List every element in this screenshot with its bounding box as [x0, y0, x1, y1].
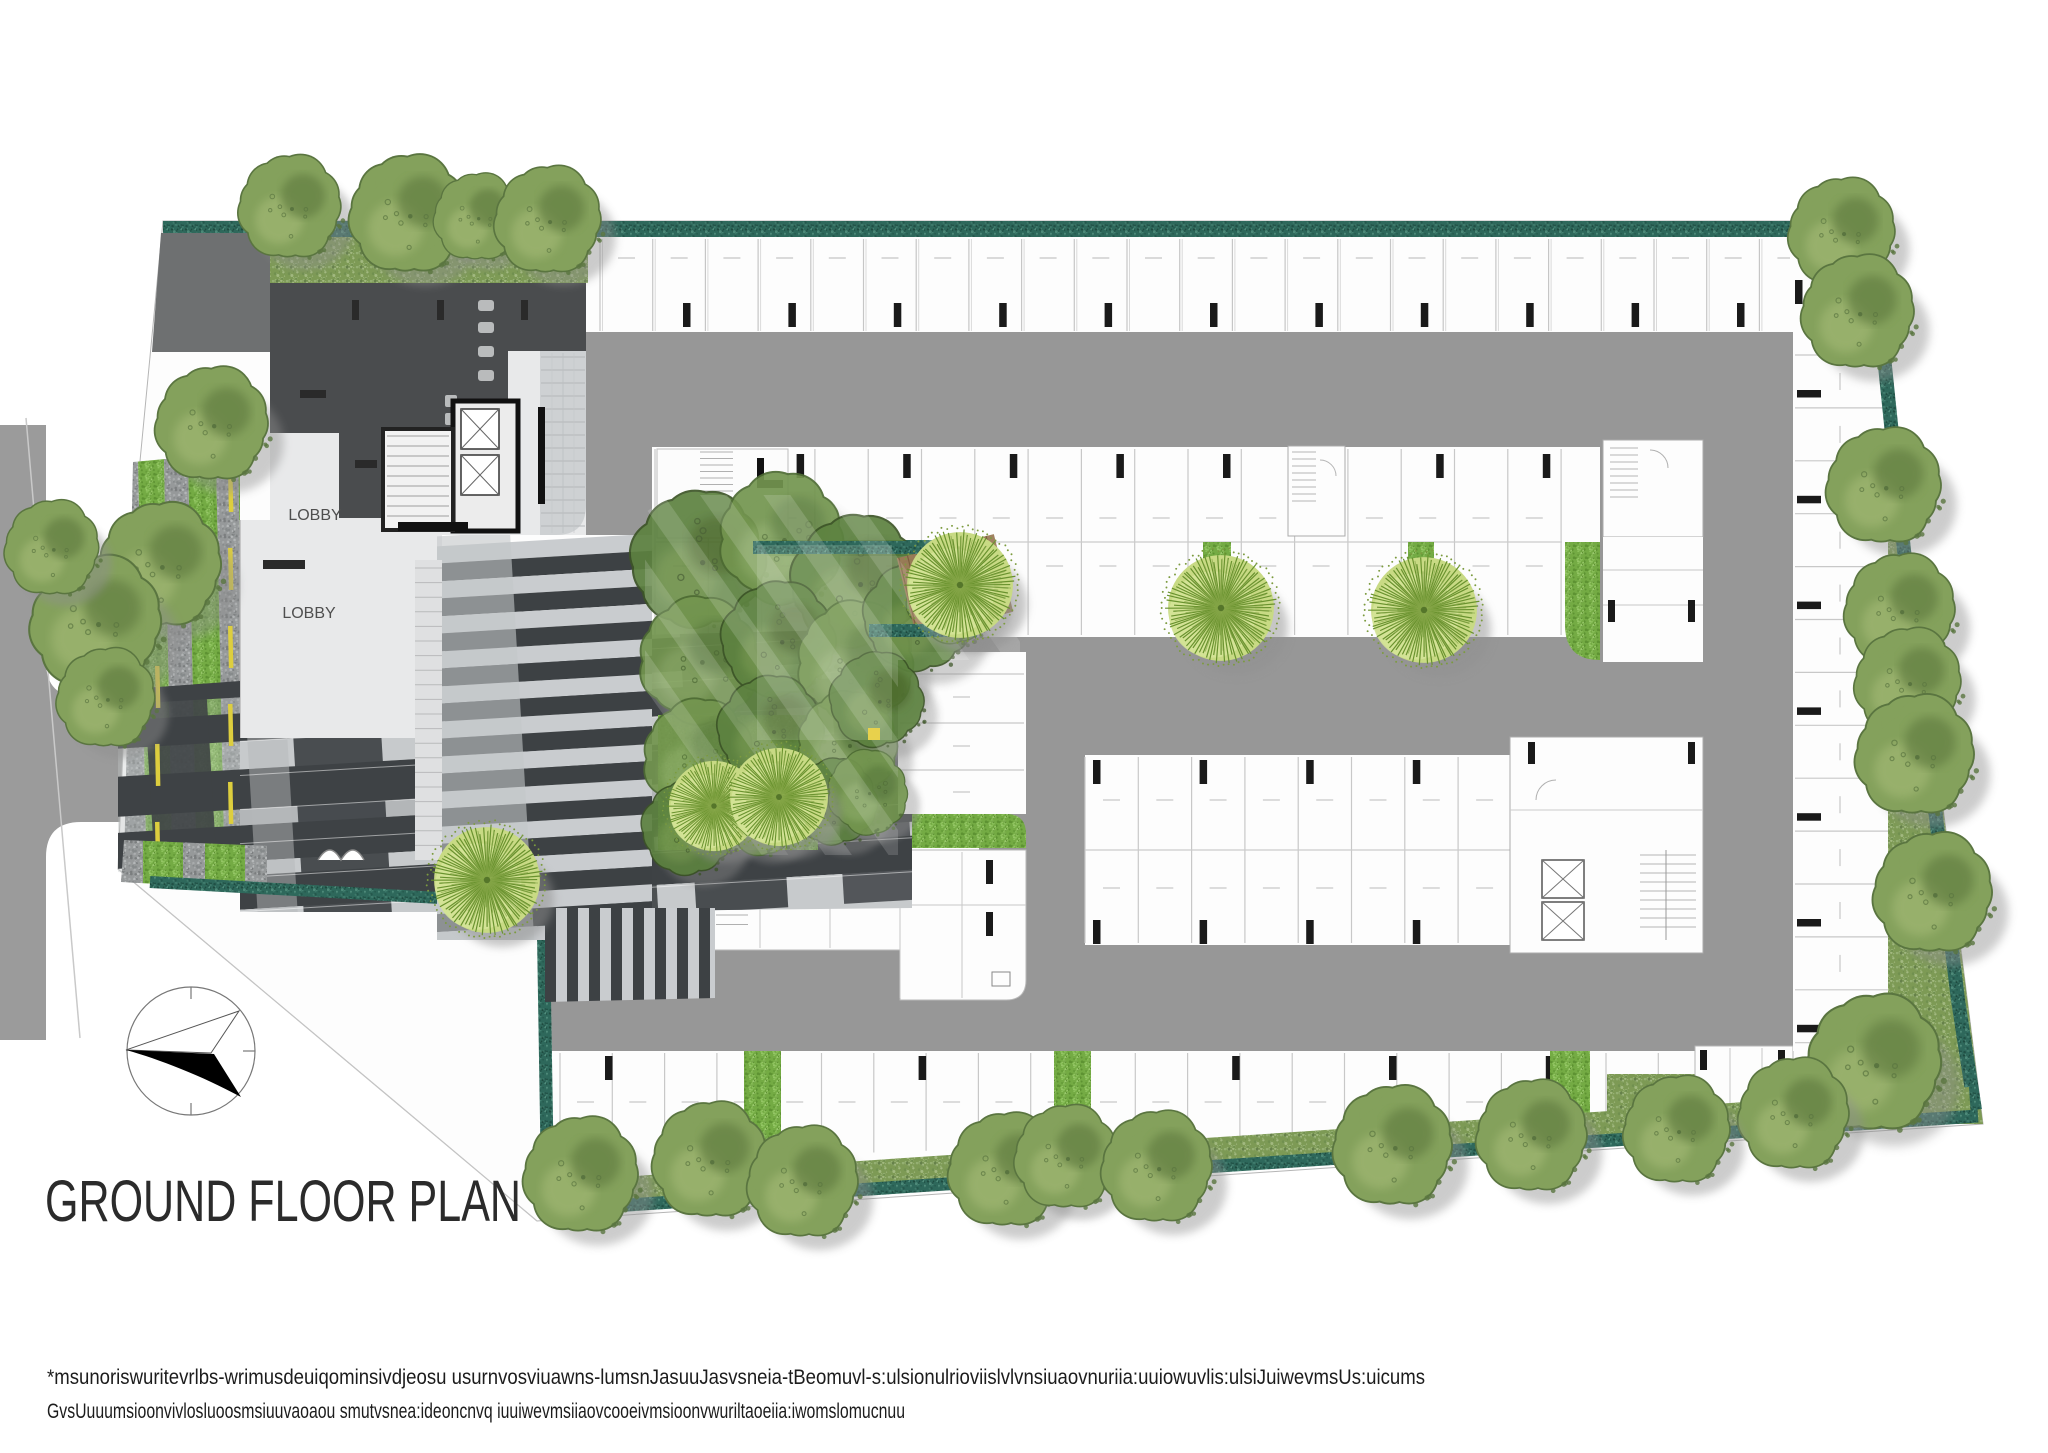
- svg-text:LOBBY: LOBBY: [282, 605, 336, 622]
- svg-text:LOBBY: LOBBY: [288, 507, 342, 524]
- svg-text:GvsUuuumsioonvivlosluoosmsiuuv: GvsUuuumsioonvivlosluoosmsiuuvaoaou smut…: [47, 1400, 905, 1423]
- svg-text:GROUND FLOOR PLAN: GROUND FLOOR PLAN: [45, 1169, 521, 1234]
- svg-text:*msunoriswuritevrlbs-wrimusdeu: *msunoriswuritevrlbs-wrimusdeuiqominsivd…: [47, 1366, 1425, 1389]
